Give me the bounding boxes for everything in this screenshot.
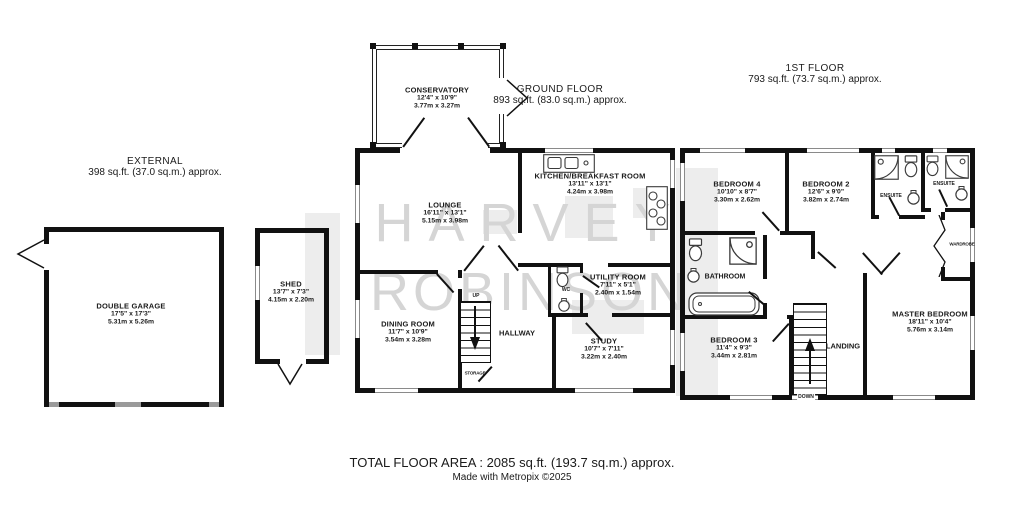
toilet-icon xyxy=(555,266,570,288)
conservatory-label: CONSERVATORY 12'4" x 10'9" 3.77m x 3.27m xyxy=(405,85,469,110)
wall xyxy=(945,208,970,212)
wall xyxy=(552,313,556,388)
first-floor-header: 1ST FLOOR 793 sq.ft. (73.7 sq.m.) approx… xyxy=(748,63,881,85)
garage-door-segment xyxy=(209,402,219,407)
stairs-arrow-down-icon xyxy=(468,304,482,354)
window xyxy=(680,333,685,371)
wall xyxy=(608,263,670,267)
bedroom4-label: BEDROOM 4 10'10" x 8'7" 3.30m x 2.62m xyxy=(713,179,760,204)
sink-icon xyxy=(954,186,969,201)
ensuite-label: ENSUITE xyxy=(933,181,955,187)
first-floor-area: 793 sq.ft. (73.7 sq.m.) approx. xyxy=(748,74,881,85)
wall xyxy=(583,313,588,317)
floorplan-canvas: HARVEY ROBINSON EXTERNAL 398 sq.ft. (37.… xyxy=(0,0,1024,527)
wall xyxy=(811,235,815,259)
wall xyxy=(580,293,583,315)
wall xyxy=(871,215,879,219)
footer: TOTAL FLOOR AREA : 2085 sq.ft. (193.7 sq… xyxy=(0,455,1024,483)
shower-icon xyxy=(874,155,899,180)
bathroom-label: BATHROOM xyxy=(705,274,746,281)
external-title: EXTERNAL xyxy=(88,156,221,167)
wall xyxy=(518,153,522,233)
window xyxy=(933,148,947,153)
toilet-icon xyxy=(903,155,919,178)
toilet-icon xyxy=(925,155,940,177)
lounge-label: LOUNGE 16'11" x 13'1" 5.15m x 3.98m xyxy=(422,200,468,225)
window xyxy=(355,300,360,338)
hallway-label: HALLWAY xyxy=(499,329,535,338)
wall-post xyxy=(370,142,376,148)
kitchen-label: KITCHEN/BREAKFAST ROOM 13'11" x 13'1" 4.… xyxy=(534,171,645,196)
garage-door-segment xyxy=(49,402,59,407)
window xyxy=(375,388,418,393)
wall-post xyxy=(500,43,506,49)
garage-door-segment xyxy=(115,402,141,407)
wall xyxy=(941,277,970,281)
dining-room-label: DINING ROOM 11'7" x 10'9" 3.54m x 3.28m xyxy=(381,319,435,344)
external-area: 398 sq.ft. (37.0 sq.m.) approx. xyxy=(88,167,221,178)
sink-icon xyxy=(557,298,571,312)
garage-label: DOUBLE GARAGE 17'5" x 17'3" 5.31m x 5.26… xyxy=(96,301,165,326)
master-bedroom-label: MASTER BEDROOM 18'11" x 10'4" 5.76m x 3.… xyxy=(892,309,968,334)
wall-post xyxy=(412,43,418,49)
wall xyxy=(548,263,551,315)
ground-floor-area: 893 sq.ft. (83.0 sq.m.) approx. xyxy=(493,95,626,106)
wc-label: WC xyxy=(562,287,570,293)
credit-line: Made with Metropix ©2025 xyxy=(0,472,1024,483)
wall-post xyxy=(458,43,464,49)
first-floor-title: 1ST FLOOR xyxy=(748,63,881,74)
wall xyxy=(763,235,767,279)
door-swing xyxy=(16,238,46,270)
wall xyxy=(899,215,925,219)
window xyxy=(700,148,745,153)
wall xyxy=(612,313,670,317)
wall xyxy=(580,263,583,273)
sink-icon xyxy=(906,190,921,205)
window xyxy=(355,185,360,223)
window xyxy=(882,148,895,153)
toilet-icon xyxy=(687,238,704,262)
window xyxy=(730,395,772,400)
wardrobe-doors xyxy=(932,215,946,277)
wall-post xyxy=(500,142,506,148)
ensuite-label: ENSUITE xyxy=(880,193,902,199)
landing-label: LANDING xyxy=(826,342,860,351)
bathtub-icon xyxy=(688,292,760,316)
door-swing xyxy=(276,362,304,386)
wall xyxy=(360,270,438,274)
wall xyxy=(458,270,462,278)
ground-floor-title: GROUND FLOOR xyxy=(493,84,626,95)
total-floor-area: TOTAL FLOOR AREA : 2085 sq.ft. (193.7 sq… xyxy=(0,455,1024,470)
window xyxy=(893,395,935,400)
window xyxy=(970,316,975,350)
sink-icon xyxy=(686,268,701,283)
wardrobe-label: WARDROBE xyxy=(949,242,974,247)
window xyxy=(670,160,675,188)
down-label: DOWN xyxy=(797,394,815,400)
wall-post xyxy=(370,43,376,49)
ground-floor-header: GROUND FLOOR 893 sq.ft. (83.0 sq.m.) app… xyxy=(493,84,626,106)
window xyxy=(670,330,675,365)
window xyxy=(575,388,633,393)
window xyxy=(680,163,685,201)
shed-label: SHED 13'7" x 7'3" 4.15m x 2.20m xyxy=(268,279,314,304)
stove-icon xyxy=(646,186,668,230)
wall xyxy=(863,273,867,395)
storage-label: STORAGE xyxy=(465,371,486,376)
shower-icon xyxy=(945,155,969,179)
wall xyxy=(785,153,789,231)
external-header: EXTERNAL 398 sq.ft. (37.0 sq.m.) approx. xyxy=(88,156,221,178)
utility-room-label: UTILITY ROOM 7'11" x 5'1" 2.40m x 1.54m xyxy=(590,272,646,297)
stairs-arrow-up-icon xyxy=(803,336,817,388)
bedroom2-label: BEDROOM 2 12'6" x 9'0" 3.82m x 2.74m xyxy=(802,179,849,204)
window xyxy=(545,148,593,153)
study-label: STUDY 10'7" x 7'11" 3.22m x 2.40m xyxy=(581,336,627,361)
window xyxy=(255,266,260,300)
up-label: UP xyxy=(473,293,480,299)
wall xyxy=(685,231,755,235)
window xyxy=(807,148,859,153)
door-opening xyxy=(402,140,488,149)
bedroom3-label: BEDROOM 3 11'4" x 9'3" 3.44m x 2.81m xyxy=(710,335,757,360)
kitchen-sink-icon xyxy=(543,154,595,173)
shower-icon xyxy=(728,237,758,265)
wall xyxy=(921,208,931,212)
